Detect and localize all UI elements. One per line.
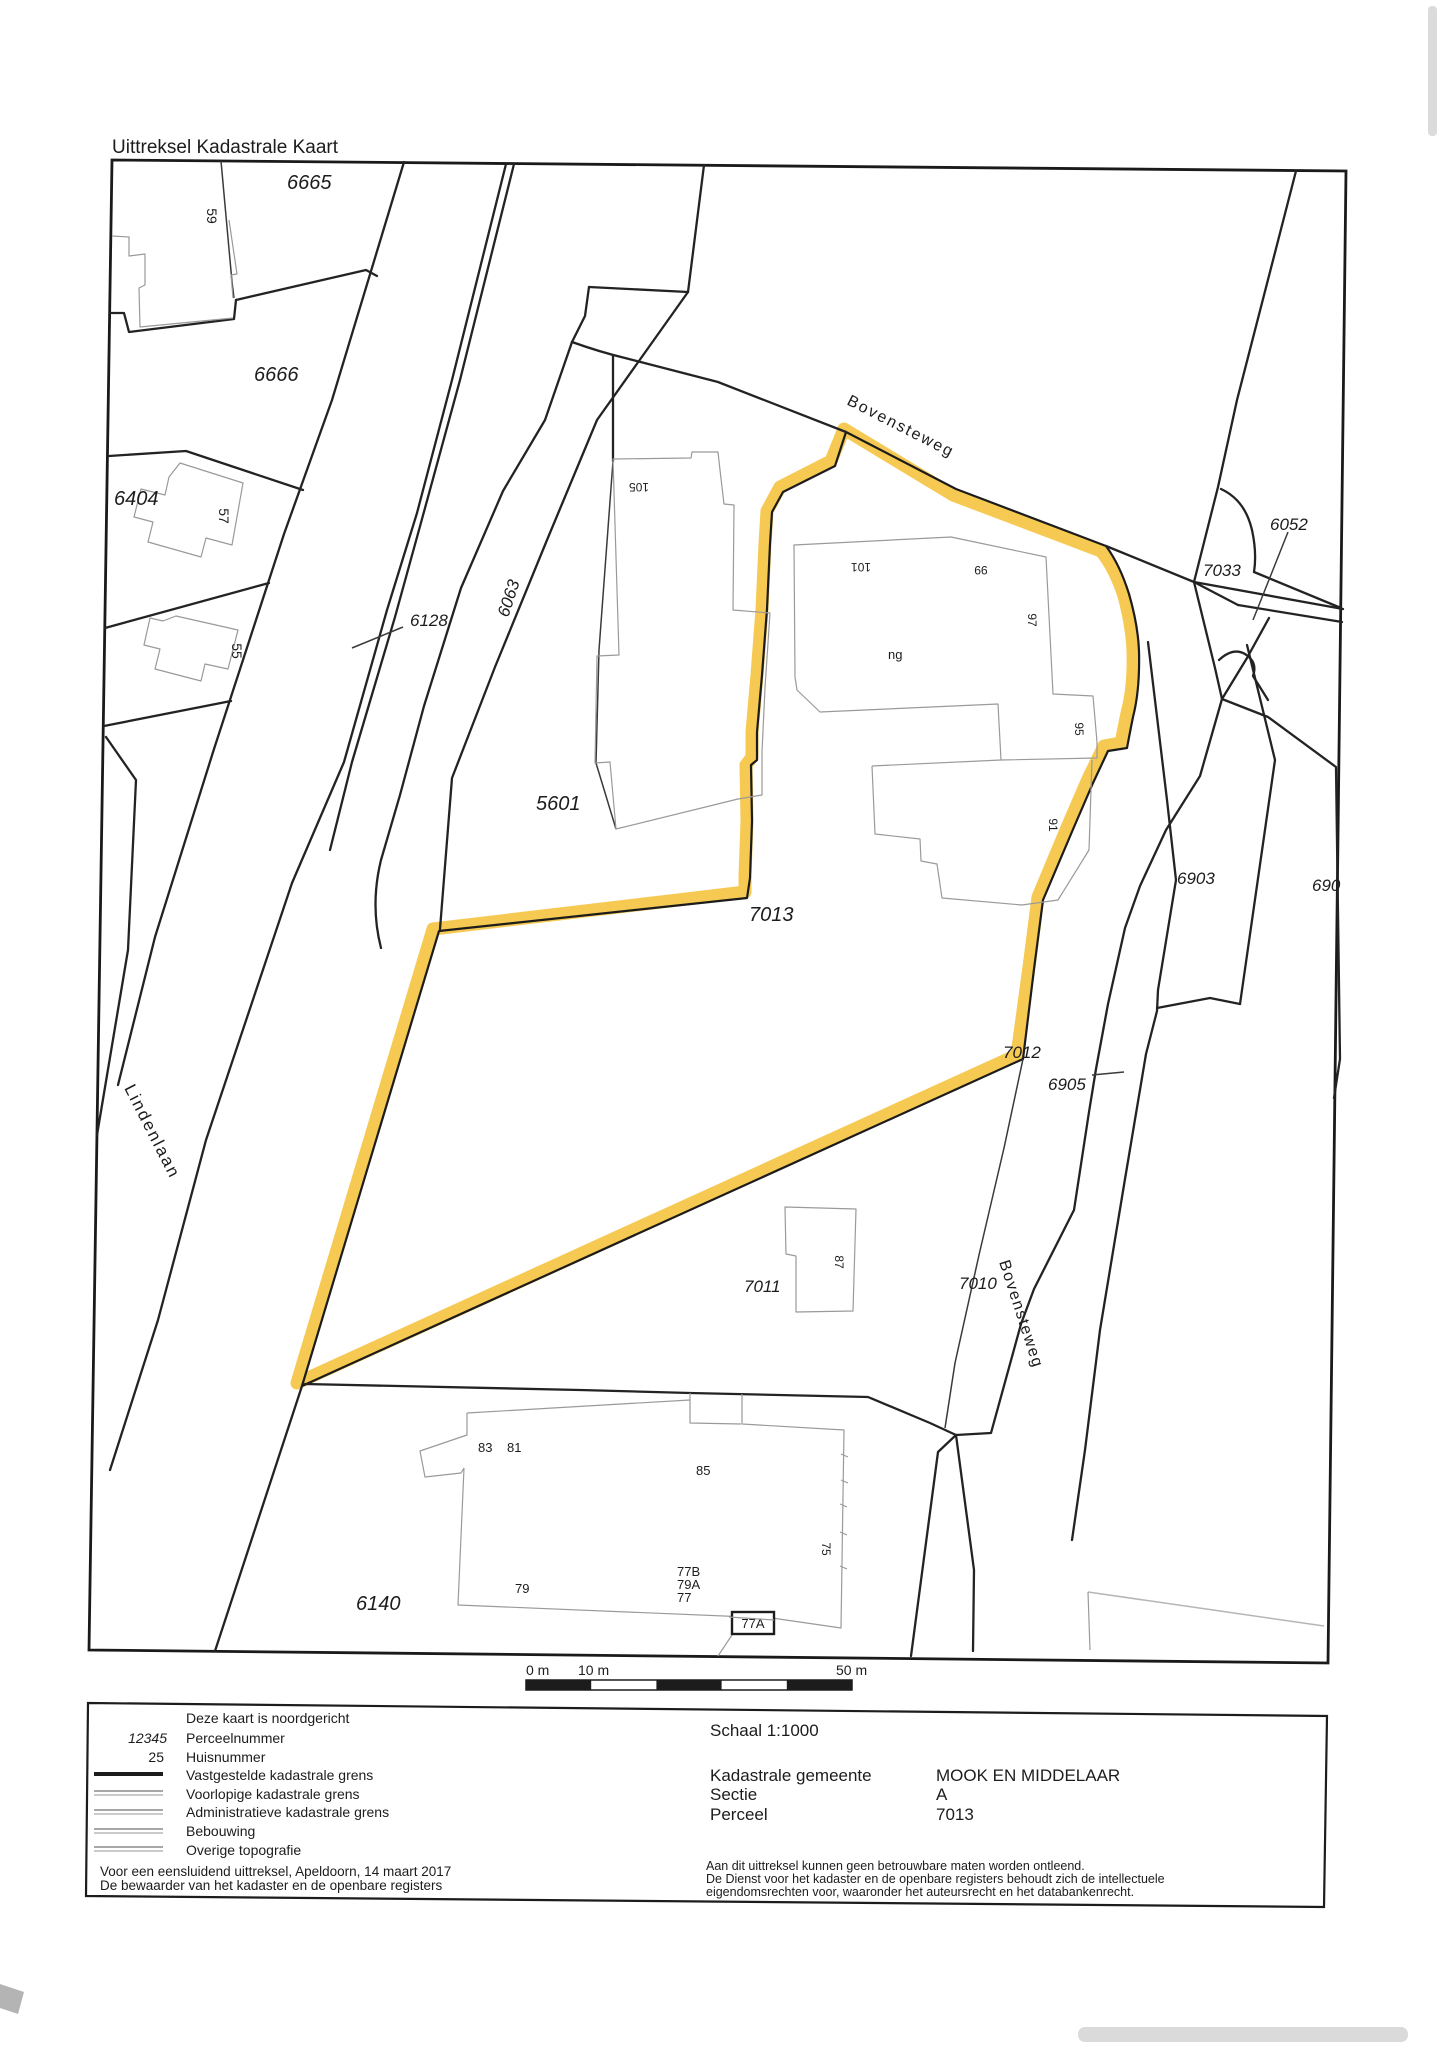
- svg-text:eigendomsrechten voor, waarond: eigendomsrechten voor, waaronder het aut…: [706, 1885, 1134, 1899]
- svg-text:Sectie: Sectie: [710, 1785, 757, 1804]
- svg-text:7011: 7011: [744, 1277, 781, 1296]
- svg-text:79: 79: [515, 1581, 529, 1596]
- svg-text:De bewaarder van het kadaster: De bewaarder van het kadaster en de open…: [100, 1878, 442, 1893]
- svg-text:Overige topografie: Overige topografie: [186, 1842, 301, 1858]
- svg-text:7013: 7013: [749, 904, 794, 926]
- svg-text:25: 25: [148, 1749, 164, 1765]
- svg-text:6052: 6052: [1270, 515, 1308, 534]
- svg-text:Deze kaart is noordgericht: Deze kaart is noordgericht: [186, 1710, 350, 1726]
- svg-text:91: 91: [1046, 818, 1060, 832]
- svg-text:Administratieve kadastrale gre: Administratieve kadastrale grens: [186, 1804, 389, 1820]
- svg-text:Voorlopige kadastrale grens: Voorlopige kadastrale grens: [186, 1786, 360, 1802]
- svg-text:Schaal 1:1000: Schaal 1:1000: [710, 1721, 819, 1740]
- svg-text:Kadastrale gemeente: Kadastrale gemeente: [710, 1766, 872, 1785]
- svg-text:77: 77: [677, 1590, 691, 1605]
- svg-text:57: 57: [216, 508, 232, 524]
- svg-text:55: 55: [229, 643, 245, 659]
- svg-text:Voor een eensluidend uittrekse: Voor een eensluidend uittreksel, Apeldoo…: [100, 1864, 451, 1879]
- svg-text:97: 97: [1025, 613, 1039, 627]
- svg-text:Aan dit uittreksel kunnen geen: Aan dit uittreksel kunnen geen betrouwba…: [706, 1859, 1085, 1873]
- svg-text:7012: 7012: [1003, 1043, 1041, 1062]
- svg-text:101: 101: [851, 560, 871, 574]
- svg-text:87: 87: [832, 1255, 846, 1269]
- svg-text:99: 99: [974, 563, 988, 577]
- svg-text:7010: 7010: [959, 1274, 997, 1293]
- svg-text:Bebouwing: Bebouwing: [186, 1823, 255, 1839]
- svg-text:0 m: 0 m: [526, 1662, 549, 1678]
- svg-text:59: 59: [204, 208, 220, 224]
- svg-text:5601: 5601: [536, 793, 581, 815]
- svg-text:6128: 6128: [410, 611, 448, 630]
- svg-text:10 m: 10 m: [578, 1662, 609, 1678]
- svg-text:ng: ng: [888, 647, 902, 662]
- svg-text:Vastgestelde kadastrale grens: Vastgestelde kadastrale grens: [186, 1767, 373, 1783]
- svg-text:6665: 6665: [287, 172, 332, 194]
- svg-text:105: 105: [629, 480, 649, 494]
- svg-text:Perceel: Perceel: [710, 1805, 768, 1824]
- svg-text:7013: 7013: [936, 1805, 974, 1824]
- svg-text:Huisnummer: Huisnummer: [186, 1749, 266, 1765]
- svg-text:81: 81: [507, 1440, 521, 1455]
- svg-text:6905: 6905: [1048, 1075, 1086, 1094]
- svg-text:Perceelnummer: Perceelnummer: [186, 1730, 285, 1746]
- svg-text:6404: 6404: [114, 488, 159, 510]
- svg-text:De Dienst voor het kadaster en: De Dienst voor het kadaster en de openba…: [706, 1872, 1165, 1886]
- svg-text:83: 83: [478, 1440, 492, 1455]
- svg-text:12345: 12345: [128, 1730, 167, 1746]
- svg-text:MOOK EN MIDDELAAR: MOOK EN MIDDELAAR: [936, 1766, 1120, 1785]
- svg-text:85: 85: [696, 1463, 710, 1478]
- svg-text:690: 690: [1312, 876, 1341, 895]
- svg-text:75: 75: [819, 1542, 833, 1556]
- svg-text:7033: 7033: [1203, 561, 1241, 580]
- svg-text:95: 95: [1072, 722, 1086, 736]
- svg-text:6666: 6666: [254, 364, 299, 386]
- svg-text:A: A: [936, 1785, 948, 1804]
- svg-text:50 m: 50 m: [836, 1662, 867, 1678]
- svg-text:Uittreksel Kadastrale Kaart: Uittreksel Kadastrale Kaart: [112, 137, 339, 158]
- svg-text:6903: 6903: [1177, 869, 1215, 888]
- svg-text:6140: 6140: [356, 1593, 401, 1615]
